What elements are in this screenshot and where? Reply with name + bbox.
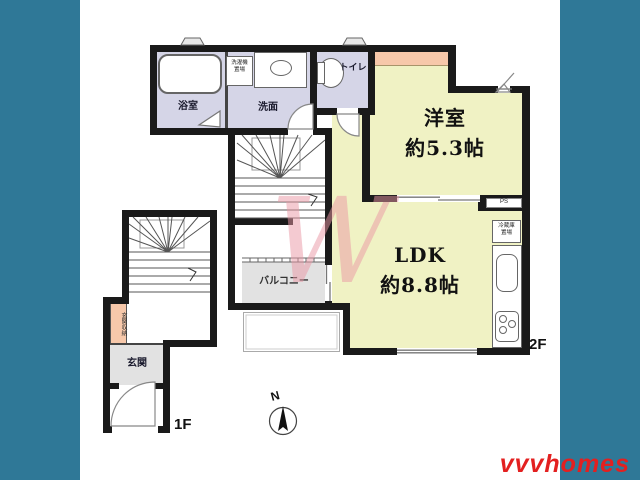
- wall: [150, 45, 157, 135]
- sliding-door-opening: [397, 195, 480, 202]
- wall: [122, 210, 217, 217]
- floor-label-1f: 1F: [174, 416, 192, 433]
- wall: [103, 297, 110, 433]
- stove-icon: [495, 311, 519, 342]
- door-opening: [288, 128, 313, 135]
- top-vent-windows: [181, 38, 366, 45]
- stove-burner-icon: [499, 315, 507, 323]
- stove-burner-icon: [499, 326, 507, 334]
- wall: [448, 86, 498, 93]
- western-size: 約5.3帖: [375, 133, 515, 163]
- laundry-line1: 洗濯機: [227, 60, 252, 67]
- vent-window-opening: [498, 86, 510, 93]
- entrance-door-opening: [112, 426, 158, 433]
- door-opening: [337, 108, 358, 115]
- pipe-space-label: PS: [486, 199, 522, 206]
- floor-label-2f: 2F: [529, 336, 547, 353]
- fridge-line2: 置場: [493, 230, 520, 237]
- wall: [103, 383, 119, 389]
- watermark-letter: W: [270, 182, 391, 300]
- entrance-storage-label: 玄関収納: [112, 304, 126, 344]
- room-label-bath: 浴室: [160, 101, 216, 113]
- roof-outline: [243, 312, 340, 352]
- wall: [122, 210, 129, 304]
- stairs-1f: [129, 217, 210, 292]
- brand-logo-text: vvvhomes: [500, 450, 630, 479]
- wall: [210, 210, 217, 347]
- fridge-space-label: 冷蔵庫 置場: [493, 223, 520, 236]
- right-border-bar: [560, 0, 640, 480]
- fridge-line1: 冷蔵庫: [493, 223, 520, 230]
- wall: [228, 128, 332, 135]
- wall: [522, 86, 530, 355]
- wall: [343, 303, 350, 355]
- compass-north-label: N: [269, 389, 281, 405]
- wall: [150, 45, 456, 52]
- wall: [152, 383, 170, 389]
- room-label-toilet: トイレ: [336, 62, 370, 72]
- floorplan-image: 浴室 洗面 トイレ 洗濯機 置場 洋室 約5.3帖 LDK 約8.8帖 PS 冷…: [0, 0, 640, 480]
- compass-icon: [270, 406, 297, 435]
- room-label-washroom: 洗面: [238, 102, 298, 114]
- toilet-tank-icon: [317, 62, 325, 84]
- laundry-space-label: 洗濯機 置場: [227, 60, 252, 73]
- room-label-western: 洋室 約5.3帖: [375, 103, 515, 163]
- stove-burner-icon: [508, 320, 516, 328]
- sink-oval-icon: [270, 60, 292, 76]
- wall: [310, 45, 317, 135]
- laundry-line2: 置場: [227, 67, 252, 74]
- bathtub-icon: [158, 54, 222, 94]
- wall: [368, 45, 375, 115]
- wall: [228, 128, 235, 310]
- western-closet-strip: [370, 52, 448, 66]
- window-opening: [397, 348, 477, 355]
- room-label-entrance: 玄関: [112, 358, 162, 370]
- left-border-bar: [0, 0, 80, 480]
- wall: [163, 340, 217, 347]
- western-name: 洋室: [375, 103, 515, 133]
